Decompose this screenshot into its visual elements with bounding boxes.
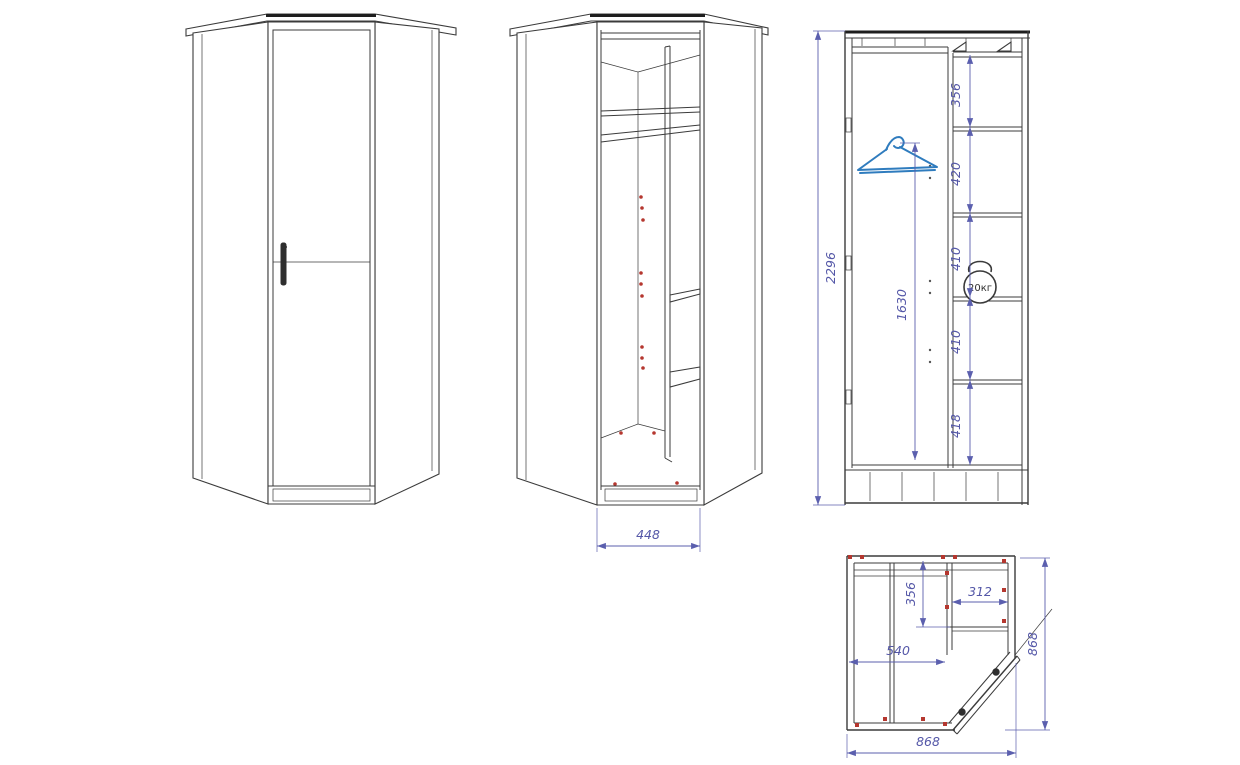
dim-label-418: 418 xyxy=(948,414,963,438)
right-side-panel xyxy=(375,22,439,504)
technical-drawing-page: 448 xyxy=(0,0,1240,765)
left-side-panel xyxy=(517,22,597,505)
dim-label-312: 312 xyxy=(968,584,992,599)
dim-overall-height: 2296 xyxy=(813,31,845,505)
shelves xyxy=(852,47,1022,384)
dim-label-540: 540 xyxy=(886,643,910,658)
left-side-panel xyxy=(193,22,268,504)
dim-overall-width-bottom: 868 xyxy=(847,663,1016,758)
front-view-closed xyxy=(186,14,456,504)
right-wall xyxy=(1022,31,1028,505)
fastener-marks xyxy=(848,555,1006,727)
dim-hanger-drop: 1630 xyxy=(894,143,920,460)
base xyxy=(845,465,1028,503)
top-panel xyxy=(845,32,1030,46)
front-view-open: 448 xyxy=(510,14,768,552)
dim-label-410-upper: 410 xyxy=(948,247,963,271)
corner-brackets xyxy=(953,38,1011,51)
dim-side-depth: 356 xyxy=(903,561,950,627)
hanger-icon xyxy=(858,137,937,173)
carcass-walls xyxy=(847,556,1015,730)
dim-side-width: 312 xyxy=(952,584,1008,602)
dim-label-868-depth: 868 xyxy=(1025,632,1040,656)
dim-label-420: 420 xyxy=(948,162,963,186)
kettlebell-load-label: 20кг xyxy=(968,283,992,294)
opening-frame xyxy=(597,22,704,505)
dim-label-1630: 1630 xyxy=(894,289,909,321)
dim-label-448: 448 xyxy=(636,527,660,542)
right-side-panel xyxy=(704,22,762,505)
screw-marks xyxy=(846,118,851,404)
pin-holes xyxy=(929,165,931,363)
dim-label-356: 356 xyxy=(948,83,963,107)
dim-opening-width: 448 xyxy=(597,508,700,552)
section-view: 20кг 2296 1630 356 420 410 410 418 xyxy=(813,31,1030,505)
plan-view: 356 312 540 868 868 xyxy=(847,555,1052,758)
corner-door xyxy=(949,609,1052,734)
corner-wardrobe-drawing: 448 xyxy=(0,0,1240,765)
dim-front-width: 540 xyxy=(849,643,945,662)
door-handle xyxy=(281,243,287,285)
dim-label-410-lower: 410 xyxy=(948,330,963,354)
dim-shelf-spacings: 356 420 410 410 418 xyxy=(948,55,970,465)
dim-label-868-width: 868 xyxy=(916,734,940,749)
dim-overall-depth-right: 868 xyxy=(1005,558,1050,730)
dim-label-plan-356: 356 xyxy=(903,582,918,606)
kettlebell-weight-icon: 20кг xyxy=(964,262,996,304)
dim-label-2296: 2296 xyxy=(823,252,838,284)
